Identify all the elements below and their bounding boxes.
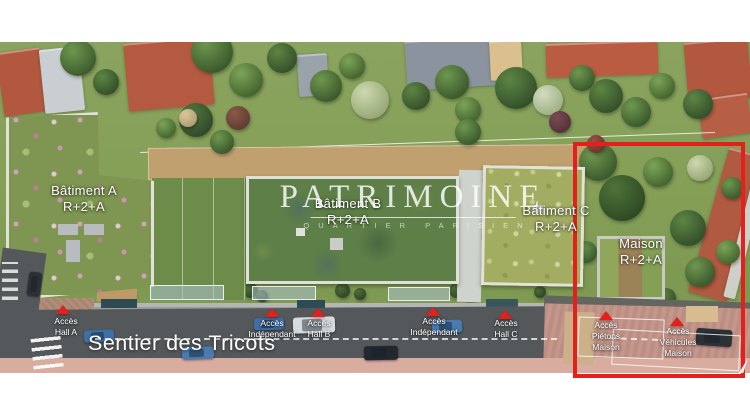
tree (402, 82, 430, 110)
tree (495, 67, 537, 109)
building-name: Maison (619, 236, 663, 252)
label-batiment-a: Bâtiment A R+2+A (51, 183, 117, 216)
label-batiment-b: Bâtiment B R+2+A (315, 196, 382, 229)
glass-canopy (150, 285, 224, 300)
building-level: R+2+A (51, 199, 117, 215)
building-name: Bâtiment B (315, 196, 382, 212)
tree (156, 118, 176, 138)
rooftop-unit (58, 224, 78, 235)
label-maison: Maison R+2+A (619, 236, 663, 269)
label-acces-pietons-maison: Accès Piétons Maison (592, 320, 620, 353)
label-acces-hall-a: Accès Hall A (54, 316, 77, 338)
access-arrow-icon (599, 311, 613, 320)
tree (649, 73, 675, 99)
tree (589, 79, 623, 113)
building-level: R+2+A (619, 252, 663, 268)
tree (226, 106, 250, 130)
building-level: R+2+A (315, 212, 382, 228)
tree (435, 65, 469, 99)
street-name: Sentier des Tricots (88, 331, 276, 356)
crosswalk (30, 335, 63, 370)
tree (351, 81, 389, 119)
tree (229, 63, 263, 97)
label-acces-independant-2: Accès Indépendant (410, 316, 457, 338)
batiment-b-roof (246, 176, 459, 284)
car (364, 346, 398, 361)
rooftop-unit (84, 224, 104, 235)
label-acces-hall-b: Accès Hall B (307, 318, 330, 340)
tree (335, 283, 350, 298)
tree (60, 42, 96, 76)
label-batiment-c: Bâtiment C R+2+A (522, 203, 589, 236)
building-name: Bâtiment C (522, 203, 589, 219)
courtyard-garden-ab (152, 178, 246, 300)
access-arrow-icon (56, 305, 70, 314)
building-level: R+2+A (522, 219, 589, 235)
tree (267, 43, 297, 73)
tree (549, 111, 571, 133)
access-arrow-icon (426, 307, 440, 316)
skylight (296, 228, 305, 236)
skylight (330, 238, 343, 250)
label-acces-vehicules-maison: Accès Véhicules Maison (660, 326, 697, 359)
tree (179, 109, 197, 127)
awning (297, 300, 325, 308)
access-arrow-icon (265, 308, 279, 317)
tree (339, 53, 365, 79)
crosswalk-small (2, 262, 18, 300)
awning (101, 299, 137, 308)
tree (310, 70, 342, 102)
building-name: Bâtiment A (51, 183, 117, 199)
tree (210, 130, 234, 154)
rooftop-unit (66, 240, 80, 262)
house-roof (545, 42, 658, 78)
glass-canopy (252, 286, 316, 300)
tree (354, 288, 366, 300)
tree (621, 97, 651, 127)
tree (455, 119, 481, 145)
glass-canopy (388, 287, 450, 301)
label-acces-hall-c: Accès Hall C (494, 318, 517, 340)
access-arrow-icon (670, 317, 684, 326)
access-arrow-icon (311, 308, 325, 317)
path-bc (457, 170, 483, 302)
tree (93, 69, 119, 95)
site-plan-screenshot: Bâtiment A R+2+A Bâtiment B R+2+A Bâtime… (0, 0, 750, 420)
tree (683, 89, 713, 119)
